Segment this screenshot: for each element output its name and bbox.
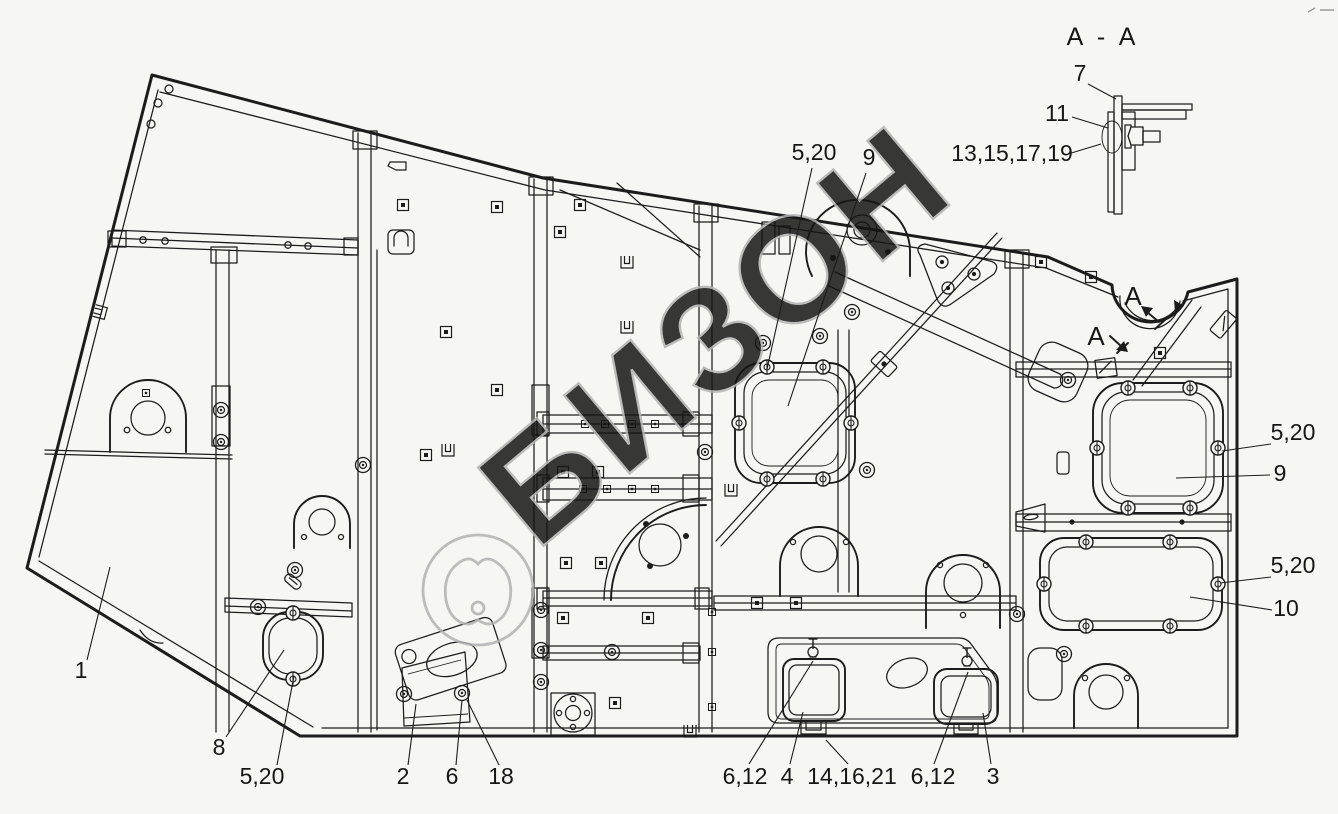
callout-label: 9	[863, 144, 876, 170]
callout-label: 9	[1274, 460, 1287, 486]
callout-label: 5,20	[240, 763, 285, 789]
callout-label: 3	[987, 763, 1000, 789]
parts-diagram-canvas: БИЗОН A - A AA 185,2026186,12414,16,216,…	[0, 0, 1338, 814]
section-title: A - A	[1067, 23, 1140, 51]
callout-label: 14,16,21	[807, 763, 897, 789]
callout-label: 2	[397, 763, 410, 789]
callout-label: 10	[1273, 595, 1299, 621]
callout-label: 8	[213, 734, 226, 760]
callout-label: 6	[446, 763, 459, 789]
callout-label: 13,15,17,19	[951, 140, 1073, 166]
callout-label: 4	[781, 763, 794, 789]
callout-label: 7	[1074, 60, 1087, 86]
section-marker-label: A	[1087, 321, 1105, 351]
callout-label: 5,20	[1271, 419, 1316, 445]
callout-label: 1	[75, 657, 88, 683]
callout-label: 5,20	[1271, 552, 1316, 578]
callout-label: 6,12	[911, 763, 956, 789]
callout-label: 6,12	[723, 763, 768, 789]
parts-diagram-page: БИЗОН A - A AA 185,2026186,12414,16,216,…	[0, 0, 1338, 814]
callout-label: 18	[488, 763, 514, 789]
section-marker-label: A	[1124, 281, 1142, 311]
callout-label: 11	[1045, 100, 1069, 126]
callout-label: 5,20	[792, 139, 837, 165]
